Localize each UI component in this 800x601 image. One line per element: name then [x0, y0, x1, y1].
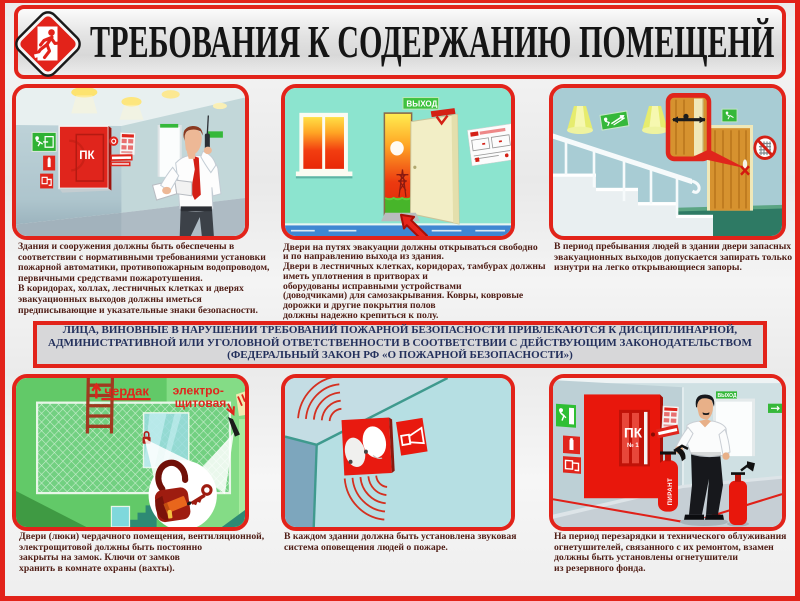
svg-text:ПК: ПК [79, 148, 95, 162]
svg-text:№ 1: № 1 [627, 442, 639, 449]
svg-text:ВЫХОД: ВЫХОД [406, 98, 437, 108]
svg-text:ВЫХОД: ВЫХОД [718, 393, 737, 399]
svg-text:ПИРАНТ: ПИРАНТ [667, 478, 674, 506]
svg-text:щитовая: щитовая [175, 396, 227, 410]
svg-text:ПК: ПК [624, 425, 643, 440]
svg-text:чердак: чердак [104, 383, 149, 398]
